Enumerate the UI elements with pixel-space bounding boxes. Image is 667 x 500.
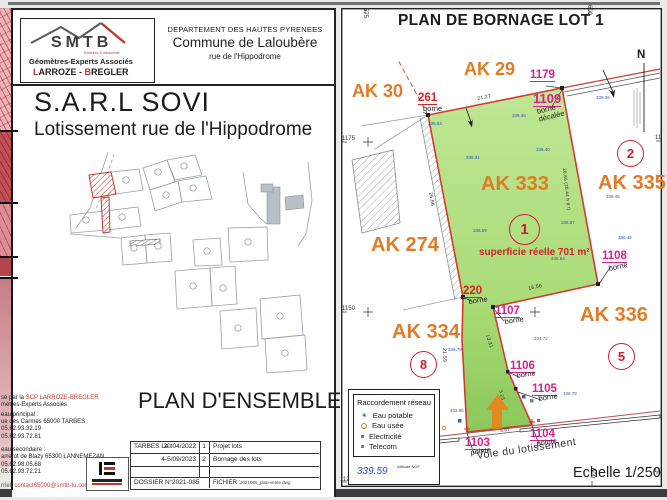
dossier-label: DOSSIER N° [134,480,172,487]
parcel-label: AK 334 [392,322,460,343]
legend-item: Electricité [354,431,434,442]
dimension: 26.66 [427,192,435,207]
ge-glyph [104,462,115,465]
contact-text: sé par la [1,395,26,401]
parcel-label: AK 29 [464,60,515,79]
elevation-value: 338.59 [473,229,487,234]
north-label: N [637,49,645,61]
legend-item: Eau usée [354,421,434,432]
contact-line: eau secondaire : [1,447,126,454]
elevation-value: 338.48 [512,114,526,119]
smtb-logo-tagline: Territoires & Urbanisme [83,52,120,56]
site-plan-drawing [60,146,338,392]
ge-glyph [99,462,102,475]
point-number: 1179 [530,69,555,82]
elevation-value: 339.36 [596,96,610,101]
utility-mark-electric [537,419,540,422]
lot-number-circle: 8 [410,351,437,378]
smtb-logo-box: SMTB Territoires & Urbanisme Géomètres-E… [20,18,155,83]
contact-phone: 05.62.93.32.19 [1,426,126,433]
utility-mark-water [458,419,462,423]
legend-box: Raccordement réseau ✴ Eau potable Eau us… [348,389,440,485]
altitude-value: 339.59 [357,466,388,477]
legend-inner-box: Raccordement réseau ✴ Eau potable Eau us… [353,394,435,457]
plan-ensemble-title: PLAN D'ENSEMBLE [138,389,322,412]
ge-caption-bar [92,479,122,482]
point-type: borne [423,105,442,113]
dossier-value: 2021-085 [172,480,199,487]
lot-number: 2 [627,146,634,161]
contact-line: sé par la SCP LARROZE-BREGLER [1,395,126,402]
lot1-highlight-tail [101,197,110,233]
scale-label: Echelle 1/250 [573,466,661,481]
logo-text: REGLER [91,67,129,77]
telecom-icon [361,445,364,448]
hatched-area [352,150,400,233]
legend-label: Eau potable [373,411,413,420]
elevation-value: 336.78 [448,348,462,353]
scanned-survey-document: SMTB Territoires & Urbanisme Géomètres-E… [0,0,667,500]
table-line [130,466,319,467]
parcel-label: AK 30 [352,82,403,101]
utility-mark-telecom [530,399,534,403]
project-title: Lotissement rue de l'Hippodrome [34,120,312,140]
legend-label: Telecom [369,442,397,451]
elevation-value: 338.83 [428,122,442,127]
table-line [130,453,319,454]
grid-label-clipped: 11 [655,135,661,141]
company-title: S.A.R.L SOVI [34,88,210,116]
top-scan-edge [8,2,660,5]
commune-line: Commune de Laloubère [155,36,335,50]
altitude-label: Altitude NGF [397,464,420,469]
contact-fax: 05.62.93.72.81 [1,434,126,441]
grid-label: 600 [586,5,592,15]
legend-item: ✴ Eau potable [354,410,434,421]
logo-text: ARROZE - [39,67,85,77]
ge-caption-bar [92,483,122,485]
table-rev-num: 1 [199,444,209,451]
smtb-logo-line1: Géomètres-Experts Associés [29,58,133,66]
lot1-highlight [89,172,116,198]
elevation-value: 338.31 [466,156,480,161]
utility-mark-water [522,395,526,399]
utility-mark-sewage [442,426,446,430]
grid-label: 1150 [342,306,355,312]
ge-glyph [104,467,115,470]
lot-number-circle: 2 [617,140,644,167]
legend-item: Telecom [354,442,434,453]
table-date: 20/04/2022 [160,444,196,451]
north-caption-lines [634,88,640,128]
elevation-value: 334.72 [534,337,548,342]
elevation-value: 338.40 [536,148,550,153]
parcel-label: AK 333 [481,174,549,195]
table-date: 4-5/09/2023 [158,457,196,464]
left-page-top-border [12,8,336,10]
header-divider [12,84,336,86]
elevation-value: 336.79 [563,392,577,397]
lot-number: 1 [520,221,528,238]
grid-label: 1175 [342,136,355,142]
contact-line: eau principal : [1,412,126,419]
area-label: superficie réelle 701 m² [479,248,590,259]
contact-line: métres-Experts Associés [1,402,126,409]
dimension: 21.59 [441,348,447,362]
contact-line: ue des Carmes 65000 TARBES [1,419,126,426]
elevation-value: 338.42 [618,236,632,241]
fichier-value: 2021085_plan-vente.dwg [240,481,291,486]
ge-glyph [104,472,115,475]
legend-label: Eau usée [372,421,404,430]
parcel-label: AK 336 [580,305,648,326]
table-rev-num: 2 [199,457,209,464]
legend-label: Electricité [369,432,402,441]
street-line: rue de l'Hippodrome [155,53,335,61]
lot-number-circle: 5 [608,343,635,370]
grid-label: 575 [362,8,368,18]
sewage-icon [361,423,367,429]
table-line [130,477,319,478]
elevation-value: 333.96 [450,409,464,414]
department-line: DEPARTEMENT DES HAUTES PYRENEES [155,26,335,34]
ge-order-logo-box [86,457,129,491]
smtb-logo-line2: LARROZE - BREGLER [33,68,129,77]
table-rev-label: Bornage des lots [213,457,262,464]
lot-number: 8 [420,357,427,372]
parcel-label: AK 274 [371,235,439,256]
water-icon: ✴ [361,411,368,420]
contact-email: contact65000@smtb-tu.com [14,483,89,489]
fichier-label: FICHIER : [213,480,240,486]
elevation-value: 338.45 [606,195,620,200]
smtb-logo-text: SMTB [51,35,112,52]
parcel-label: AK 335 [598,173,666,194]
contact-text: rriel: [1,483,14,489]
lot-number: 5 [618,349,625,364]
table-rev-label: Projet lots [213,444,242,451]
table-line [209,441,210,488]
bornage-title: PLAN DE BORNAGE LOT 1 [380,13,622,29]
elevation-value: 338.64 [551,257,565,262]
electricity-icon [361,435,364,438]
elevation-value: 338.87 [561,221,575,226]
lot-number-circle: 1 [509,214,540,245]
contact-firm: SCP LARROZE-BREGLER [26,395,99,401]
legend-title: Raccordement réseau [354,398,434,407]
